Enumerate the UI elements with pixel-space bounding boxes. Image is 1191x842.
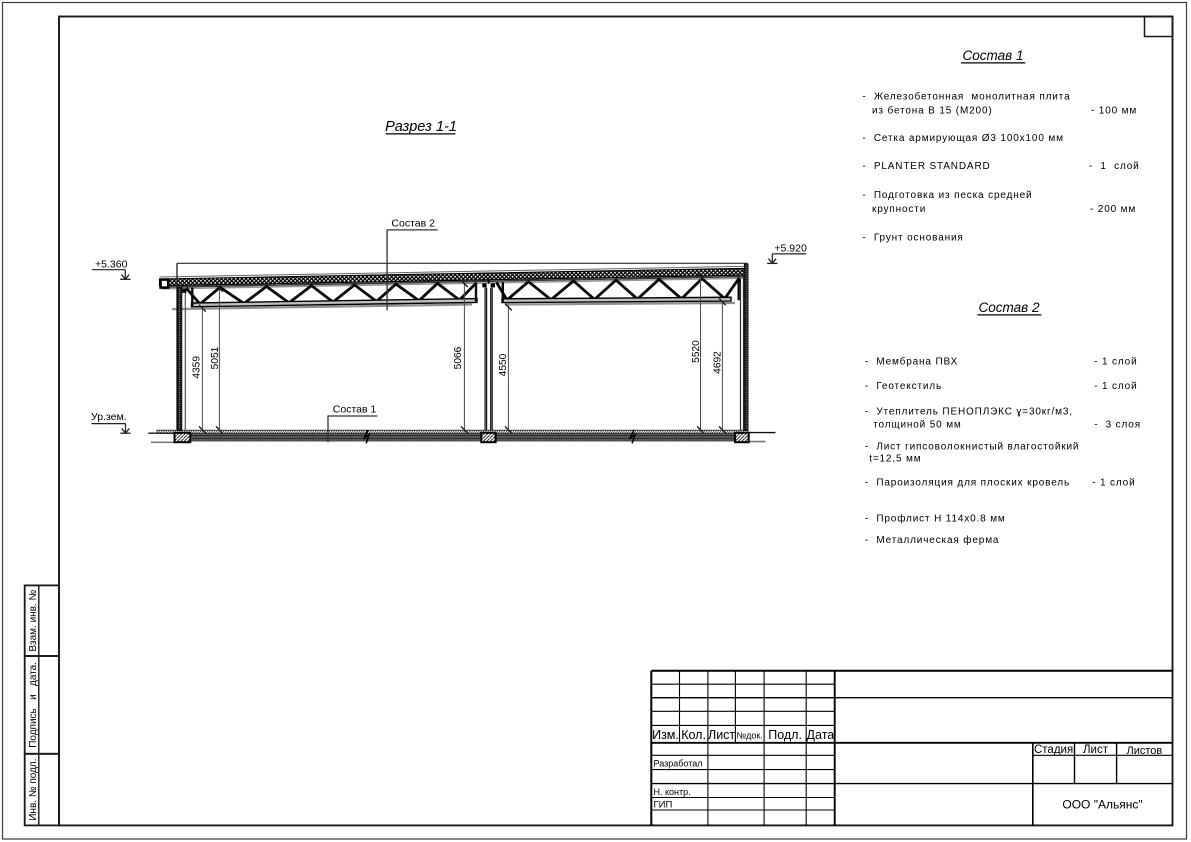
svg-text:- Сетка армирующая Ø3 100х100: - Сетка армирующая Ø3 100х100 мм [862,133,1063,144]
svg-text:- Геотекстиль: - Геотекстиль [865,381,942,392]
svg-text:Кол.: Кол. [681,728,706,742]
svg-text:Изм.: Изм. [652,728,679,742]
svg-text:Разработал: Разработал [654,758,703,768]
svg-text:из бетона В 15 (М200): из бетона В 15 (М200) [872,105,993,117]
svg-text:+5.920: +5.920 [774,243,807,255]
svg-text:Подл.: Подл. [768,728,802,742]
svg-text:Взам. инв. №: Взам. инв. № [28,589,39,651]
svg-text:Разрез 1-1: Разрез 1-1 [385,119,457,135]
svg-text:- Металлическая ферма: - Металлическая ферма [865,534,999,546]
svg-text:- 1 слой: - 1 слой [1094,381,1137,392]
svg-text:- 3 слоя: - 3 слоя [1094,419,1141,430]
svg-text:5066: 5066 [453,346,464,369]
svg-text:Лист: Лист [1083,744,1109,756]
svg-text:t=12,5 мм: t=12,5 мм [869,454,921,465]
svg-text:5051: 5051 [210,346,221,369]
svg-text:5520: 5520 [691,340,702,363]
svg-text:- Мембрана ПВХ: - Мембрана ПВХ [865,355,958,367]
svg-text:ООО "Альянс": ООО "Альянс" [1062,798,1142,812]
svg-text:Состав 1: Состав 1 [963,48,1024,63]
svg-text:Инв. № подл.: Инв. № подл. [28,758,39,820]
svg-text:- Подготовка из песка средней: - Подготовка из песка средней [862,190,1032,201]
svg-text:4692: 4692 [712,351,723,374]
svg-text:Состав 2: Состав 2 [391,217,435,229]
svg-text:Лист: Лист [708,728,735,742]
svg-text:4359: 4359 [191,356,202,379]
svg-text:крупности: крупности [872,204,926,215]
svg-text:- 100 мм: - 100 мм [1091,106,1137,117]
svg-text:Подпись и дата.: Подпись и дата. [28,662,39,748]
svg-text:- Профлист Н 114х0.8 мм: - Профлист Н 114х0.8 мм [865,512,1006,524]
svg-text:Стадия: Стадия [1034,744,1073,756]
svg-text:Листов: Листов [1127,745,1163,757]
svg-text:- Пароизоляция для плоских кр: - Пароизоляция для плоских кровель [865,478,1070,489]
svg-text:- 200 мм: - 200 мм [1090,204,1136,215]
svg-text:- 1 слой: - 1 слой [1089,161,1140,172]
svg-text:- 1 слой: - 1 слой [1092,478,1135,489]
svg-text:- Грунт основания: - Грунт основания [862,233,963,244]
svg-text:- Лист гипсоволокнистый влаго: - Лист гипсоволокнистый влагостойкий [865,442,1079,453]
svg-text:толщиной 50 мм: толщиной 50 мм [873,419,961,430]
svg-text:- PLANTER STANDARD: - PLANTER STANDARD [862,161,990,172]
svg-text:- Железобетонная монолитная: - Железобетонная монолитная плита [862,91,1070,103]
svg-text:- 1 слой: - 1 слой [1094,356,1137,367]
svg-text:№док.: №док. [737,730,763,740]
svg-text:ГИП: ГИП [654,799,673,810]
svg-text:+5.360: +5.360 [95,258,128,270]
svg-text:4550: 4550 [498,353,509,376]
svg-text:- Утеплитель ПЕНОПЛЭКС ɣ=30кг: - Утеплитель ПЕНОПЛЭКС ɣ=30кг/м3, [865,407,1073,418]
svg-text:Н. контр.: Н. контр. [654,787,691,797]
svg-text:Состав 1: Состав 1 [333,404,377,416]
svg-text:Состав 2: Состав 2 [979,300,1040,315]
svg-text:Дата: Дата [807,728,835,742]
svg-text:Ур.зем.: Ур.зем. [91,411,127,423]
